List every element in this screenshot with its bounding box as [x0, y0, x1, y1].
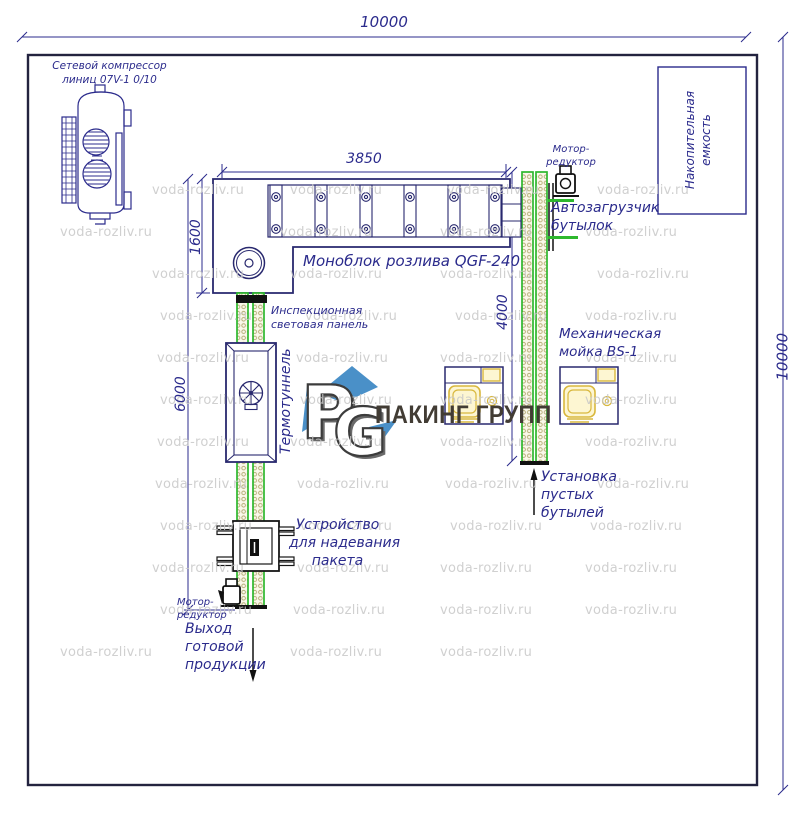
bottle-infeed	[502, 188, 521, 237]
bag-line3: пакета	[289, 552, 386, 570]
thermotunnel-drawing	[226, 343, 276, 462]
bag-line2: для надевания	[289, 534, 386, 552]
storage-tank-label-line1: Накопительная	[683, 75, 699, 205]
motor-top-line1: Мотор-	[539, 143, 603, 156]
washer-line1: Механическая	[559, 326, 661, 344]
autoloader-label: Автозагрузчик бутылок	[551, 199, 659, 235]
compressor-label-line1: Сетевой компрессор	[52, 60, 167, 74]
logo-company-name: ПАКИНГ ГРУПП	[375, 401, 552, 430]
compressor-drawing	[62, 85, 131, 224]
conveyor-end-cap	[520, 461, 549, 465]
washer-label: Механическая мойка BS-1	[559, 326, 661, 361]
dim-1600: 1600	[187, 201, 205, 273]
motor-reducer-top-icon	[553, 166, 579, 196]
bottles-line2: пустых	[541, 486, 617, 504]
autoloader-line2: бутылок	[551, 217, 659, 235]
inspection-line1: Инспекционная	[271, 304, 368, 318]
bottles-line1: Установка	[541, 468, 617, 486]
washer-line2: мойка BS-1	[559, 344, 661, 362]
inspection-light-panel	[236, 295, 267, 303]
motor-top-line2: редуктор	[539, 156, 603, 169]
empty-bottles-label: Установка пустых бутылей	[541, 468, 617, 523]
dim-top-10000: 10000	[349, 13, 419, 33]
storage-tank-label-line2: емкость	[699, 75, 715, 205]
output-line1: Выход	[185, 620, 266, 638]
thermotunnel-label: Термотуннель	[277, 354, 295, 454]
empty-bottles-arrow	[531, 468, 538, 515]
compressor-label-line2: линиц 07V-1 0/10	[52, 74, 167, 88]
bag-device-label: Устройство для надевания пакета	[289, 516, 386, 571]
dim-right-10000: 10000	[773, 322, 793, 392]
autoloader-line1: Автозагрузчик	[551, 199, 659, 217]
compressor-label: Сетевой компрессор линиц 07V-1 0/10	[52, 60, 167, 87]
floor-plan-page: P P G G 10000 10000 3850 1600 6000 4000 …	[0, 0, 809, 813]
motor-reducer-top-label: Мотор- редуктор	[539, 143, 603, 169]
inspection-line2: световая панель	[271, 318, 368, 332]
inspection-panel-label: Инспекционная световая панель	[271, 304, 368, 333]
storage-tank-label: Накопительная емкость	[683, 75, 721, 205]
dim-4000: 4000	[494, 276, 512, 348]
bag-line1: Устройство	[289, 516, 386, 534]
filling-monoblock	[213, 179, 521, 293]
monoblock-label: Моноблок розлива QGF-240	[303, 252, 505, 272]
dim-3850: 3850	[329, 150, 399, 168]
motor-bottom-line1: Мотор-	[177, 596, 227, 609]
bag-device-drawing	[217, 521, 294, 571]
motor-reducer-bottom-label: Мотор- редуктор	[177, 596, 227, 622]
output-label: Выход готовой продукции	[185, 620, 266, 675]
output-line3: продукции	[185, 656, 266, 674]
mechanical-washer-right	[560, 367, 618, 424]
output-line2: готовой	[185, 638, 266, 656]
bottles-line3: бутылей	[541, 504, 617, 522]
dim-6000: 6000	[172, 358, 190, 430]
